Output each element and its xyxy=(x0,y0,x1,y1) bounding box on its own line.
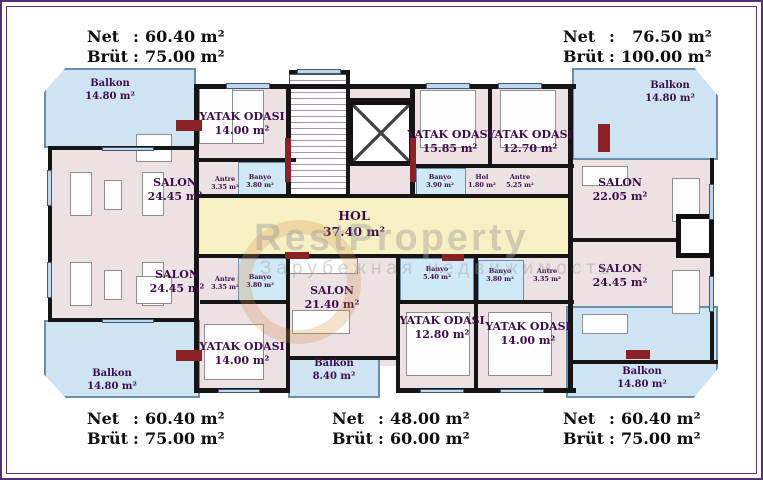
room-label-antre-bl: Antre3.35 m² xyxy=(211,276,239,292)
wall xyxy=(348,98,414,102)
room-label-banyo-br: Banyo3.80 m² xyxy=(486,268,514,284)
coffee-table xyxy=(104,270,122,300)
column-accent xyxy=(285,138,291,182)
column-accent xyxy=(176,120,202,131)
room-label-antre-tl: Antre3.35 m² xyxy=(211,176,239,192)
brut-value: 75.00 m² xyxy=(145,429,225,449)
area-summary-top-left: Net:60.40 m² Brüt:75.00 m² xyxy=(87,27,225,67)
room-label-hol-tr: Hol1.80 m² xyxy=(468,174,496,190)
column-accent xyxy=(176,350,202,361)
sofa xyxy=(582,314,628,334)
net-label: Net xyxy=(87,27,133,47)
area-summary-bottom-right: Net:60.40 m² Brüt:75.00 m² xyxy=(563,409,701,449)
column-accent xyxy=(626,350,650,359)
window xyxy=(426,83,470,89)
wall xyxy=(198,194,570,198)
brut-value: 60.00 m² xyxy=(390,429,470,449)
colon: : xyxy=(609,429,621,449)
room-label-salon-tl: SALON24.45 m² xyxy=(148,176,203,204)
window xyxy=(102,147,154,151)
room-label-balkon-tl: Balkon14.80 m² xyxy=(85,78,135,103)
colon: : xyxy=(133,429,145,449)
kitchen-counter xyxy=(288,258,358,274)
wall xyxy=(198,254,572,258)
room-label-bedroom-br: YATAK ODASI14.00 m² xyxy=(485,320,570,348)
room-label-balkon-bc: Balkon8.40 m² xyxy=(313,358,356,383)
sofa xyxy=(70,262,92,306)
net-label: Net xyxy=(563,27,609,47)
room-label-banyo-bl: Banyo3.80 m² xyxy=(246,274,274,290)
colon: : xyxy=(133,47,145,67)
room-label-balkon-bl: Balkon14.80 m² xyxy=(87,368,137,393)
room-label-balkon-tr: Balkon14.80 m² xyxy=(645,80,695,105)
net-label: Net xyxy=(563,409,609,429)
net-label: Net xyxy=(332,409,378,429)
colon: : xyxy=(609,27,621,47)
room-label-salon-bl: SALON24.45 m² xyxy=(150,268,205,296)
sofa xyxy=(70,172,92,216)
wall xyxy=(346,70,350,198)
brut-label: Brüt xyxy=(563,429,609,449)
colon: : xyxy=(378,429,390,449)
colon: : xyxy=(133,409,145,429)
brut-value: 75.00 m² xyxy=(621,429,701,449)
net-label: Net xyxy=(87,409,133,429)
area-summary-bottom-center: Net:48.00 m² Brüt:60.00 m² xyxy=(332,409,470,449)
room-label-bedroom-bc: YATAK ODASI12.80 m² xyxy=(399,314,484,342)
net-value: 60.40 m² xyxy=(145,409,225,429)
elevator xyxy=(350,102,412,164)
wall xyxy=(348,162,414,166)
sofa xyxy=(292,310,350,334)
net-value: 60.40 m² xyxy=(145,27,225,47)
staircase xyxy=(289,74,347,198)
window xyxy=(420,389,464,393)
brut-value: 75.00 m² xyxy=(145,47,225,67)
service-shaft xyxy=(676,214,714,258)
room-label-banyo-bc: Banyo5.40 m² xyxy=(423,266,451,282)
brut-label: Brüt xyxy=(563,47,609,67)
room-label-bedroom2-tr: YATAK ODASI12.70 m² xyxy=(487,128,572,156)
column-accent xyxy=(598,124,610,152)
window xyxy=(218,389,260,393)
brut-label: Brüt xyxy=(332,429,378,449)
area-summary-bottom-left: Net:60.40 m² Brüt:75.00 m² xyxy=(87,409,225,449)
wall xyxy=(196,158,296,162)
colon: : xyxy=(378,409,390,429)
window xyxy=(709,276,714,312)
area-summary-top-right: Net:76.50 m² Brüt:100.00 m² xyxy=(563,27,712,67)
colon: : xyxy=(609,409,621,429)
window xyxy=(226,83,270,89)
window xyxy=(709,184,714,220)
brut-value: 100.00 m² xyxy=(621,47,712,67)
colon: : xyxy=(133,27,145,47)
window xyxy=(47,170,52,206)
room-label-salon-bc: SALON21.40 m² xyxy=(305,284,360,312)
room-label-bedroom1-tr: YATAK ODASI15.85 m² xyxy=(407,128,492,156)
window xyxy=(47,262,52,298)
net-value: 48.00 m² xyxy=(390,409,470,429)
floor-plan: Balkon14.80 m² YATAK ODASI14.00 m² SALON… xyxy=(42,62,724,402)
brut-label: Brüt xyxy=(87,429,133,449)
room-label-banyo-tr: Banyo3.90 m² xyxy=(426,174,454,190)
room-label-banyo-tl: Banyo3.80 m² xyxy=(246,174,274,190)
window xyxy=(102,319,154,323)
wall xyxy=(398,300,574,304)
dining-table xyxy=(672,270,700,314)
wall xyxy=(412,164,574,168)
floor-plan-page: Net:60.40 m² Brüt:75.00 m² Net:76.50 m² … xyxy=(0,0,763,480)
room-label-antre-tr: Antre5.25 m² xyxy=(506,174,534,190)
net-value: 60.40 m² xyxy=(621,409,701,429)
column-accent xyxy=(442,254,464,261)
room-label-salon-br: SALON24.45 m² xyxy=(593,262,648,290)
net-value: 76.50 m² xyxy=(621,27,712,47)
colon: : xyxy=(609,47,621,67)
window xyxy=(297,69,341,74)
brut-label: Brüt xyxy=(87,47,133,67)
coffee-table xyxy=(104,180,122,210)
room-label-bedroom-bl: YATAK ODASI14.00 m² xyxy=(199,340,284,368)
wall xyxy=(570,360,718,364)
window xyxy=(500,389,544,393)
column-accent xyxy=(285,252,309,259)
room-label-antre-br: Antre3.35 m² xyxy=(533,268,561,284)
wall xyxy=(286,258,290,392)
room-label-hol: HOL37.40 m² xyxy=(323,208,385,239)
room-label-balkon-br: Balkon14.80 m² xyxy=(617,366,667,391)
wall xyxy=(200,300,290,304)
room-label-salon-tr: SALON22.05 m² xyxy=(593,176,648,204)
room-label-bedroom-tl: YATAK ODASI14.00 m² xyxy=(199,110,284,138)
window xyxy=(498,83,542,89)
